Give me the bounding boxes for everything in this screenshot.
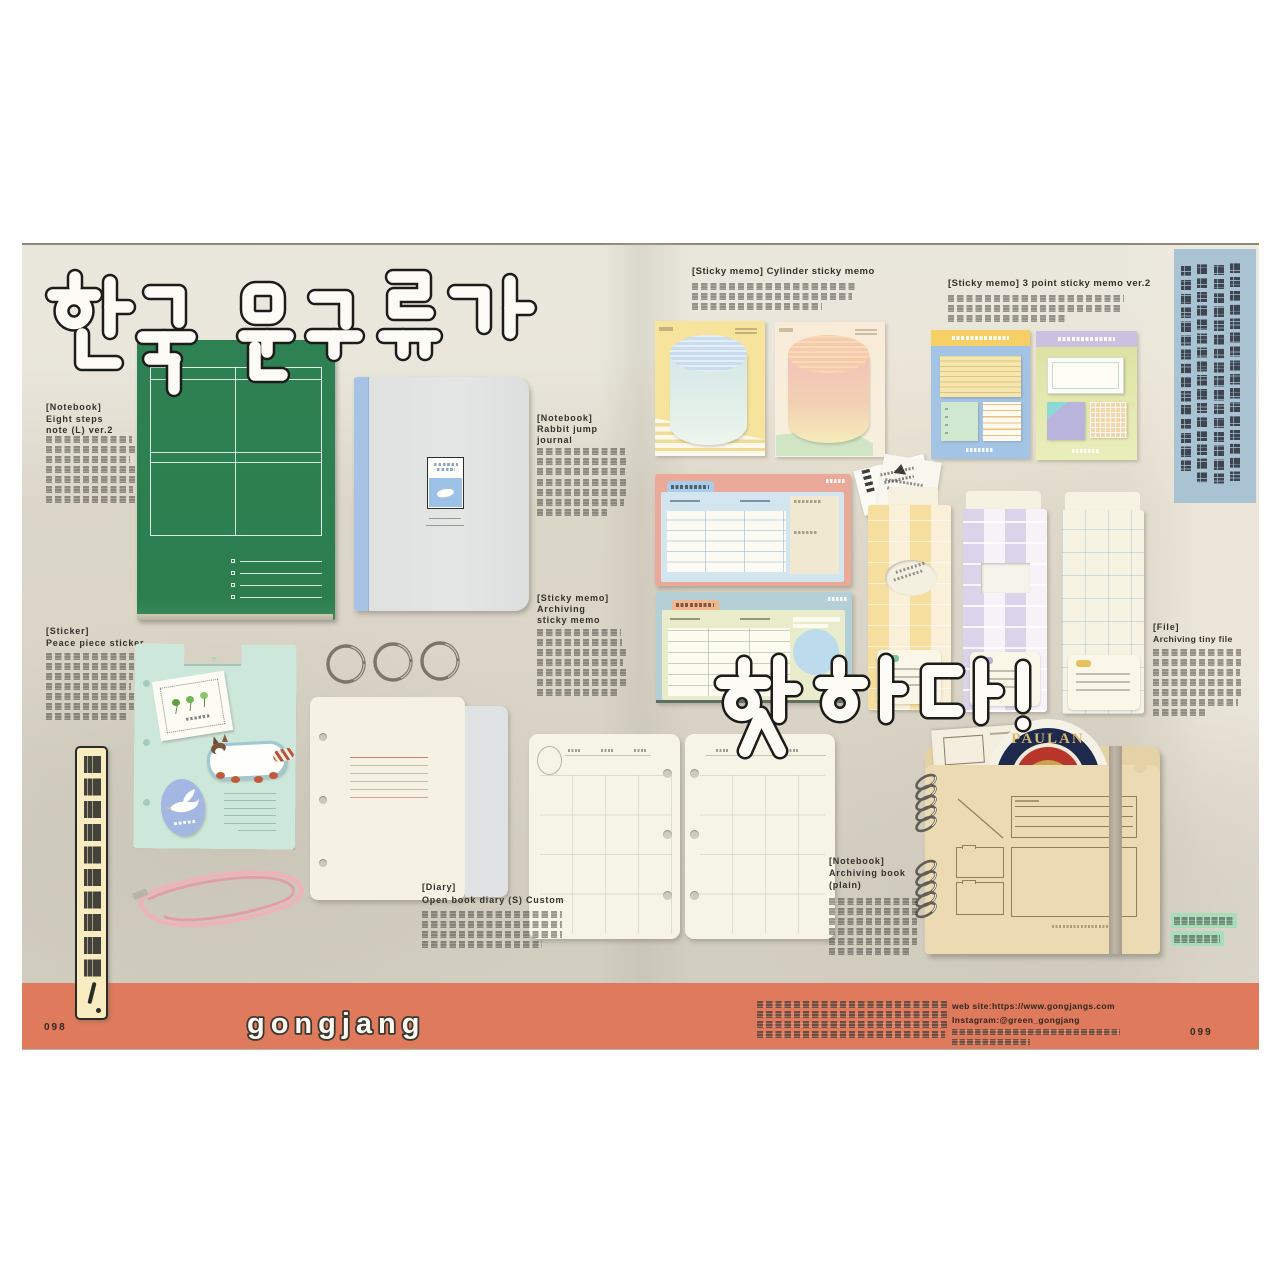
svg-text:gongjang: gongjang [247, 1008, 425, 1040]
